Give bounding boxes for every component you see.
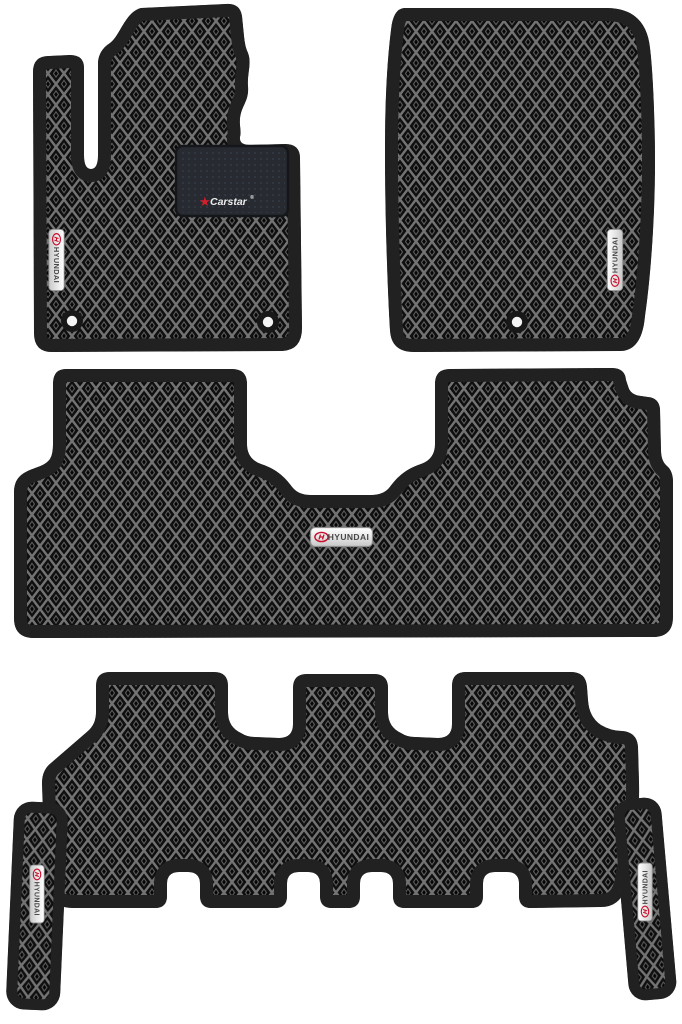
- carstar-label: Carstar: [210, 196, 248, 208]
- hyundai-badge-label: HYUNDAI: [52, 247, 61, 283]
- left-side-mat: HYUNDAI: [5, 801, 68, 1011]
- second-row-mat: HYUNDAI: [14, 368, 673, 638]
- hyundai-badge-driver: HYUNDAI: [49, 229, 64, 290]
- hyundai-badge-label: HYUNDAI: [642, 870, 649, 904]
- third-row-mat: [42, 672, 639, 908]
- fastener-hole: [61, 310, 83, 332]
- hyundai-badge-passenger: HYUNDAI: [607, 229, 622, 290]
- driver-mat: ★ Carstar ® HYUNDAI: [33, 4, 302, 352]
- hyundai-badge-label: HYUNDAI: [33, 882, 40, 916]
- carstar-star-icon: ★: [199, 194, 211, 209]
- fastener-hole: [506, 311, 528, 333]
- product-image: ★ Carstar ® HYUNDAI: [0, 0, 682, 1024]
- carstar-logo: ★ Carstar ®: [199, 194, 255, 209]
- passenger-mat: HYUNDAI: [385, 8, 655, 352]
- fastener-hole: [257, 311, 279, 333]
- right-side-mat: HYUNDAI: [612, 796, 677, 1001]
- hyundai-badge-label: HYUNDAI: [611, 237, 620, 273]
- hyundai-badge-left-side: HYUNDAI: [30, 865, 44, 923]
- hyundai-badge-right-side: HYUNDAI: [638, 863, 652, 921]
- hyundai-badge-label: HYUNDAI: [328, 532, 370, 542]
- heel-pad: ★ Carstar ®: [176, 146, 288, 216]
- hyundai-badge-second-row: HYUNDAI: [311, 528, 373, 547]
